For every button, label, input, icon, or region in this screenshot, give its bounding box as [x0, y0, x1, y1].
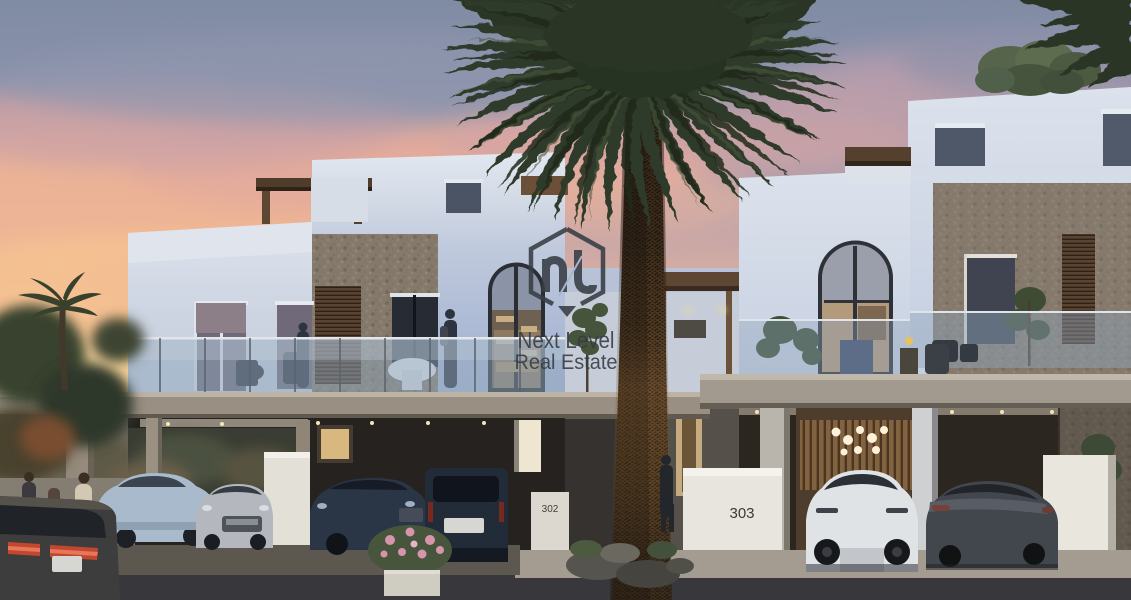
svg-text:302: 302	[542, 504, 559, 515]
svg-text:303: 303	[729, 505, 754, 522]
svg-text:Real Estate: Real Estate	[515, 351, 618, 374]
svg-text:Next Level: Next Level	[518, 327, 615, 353]
